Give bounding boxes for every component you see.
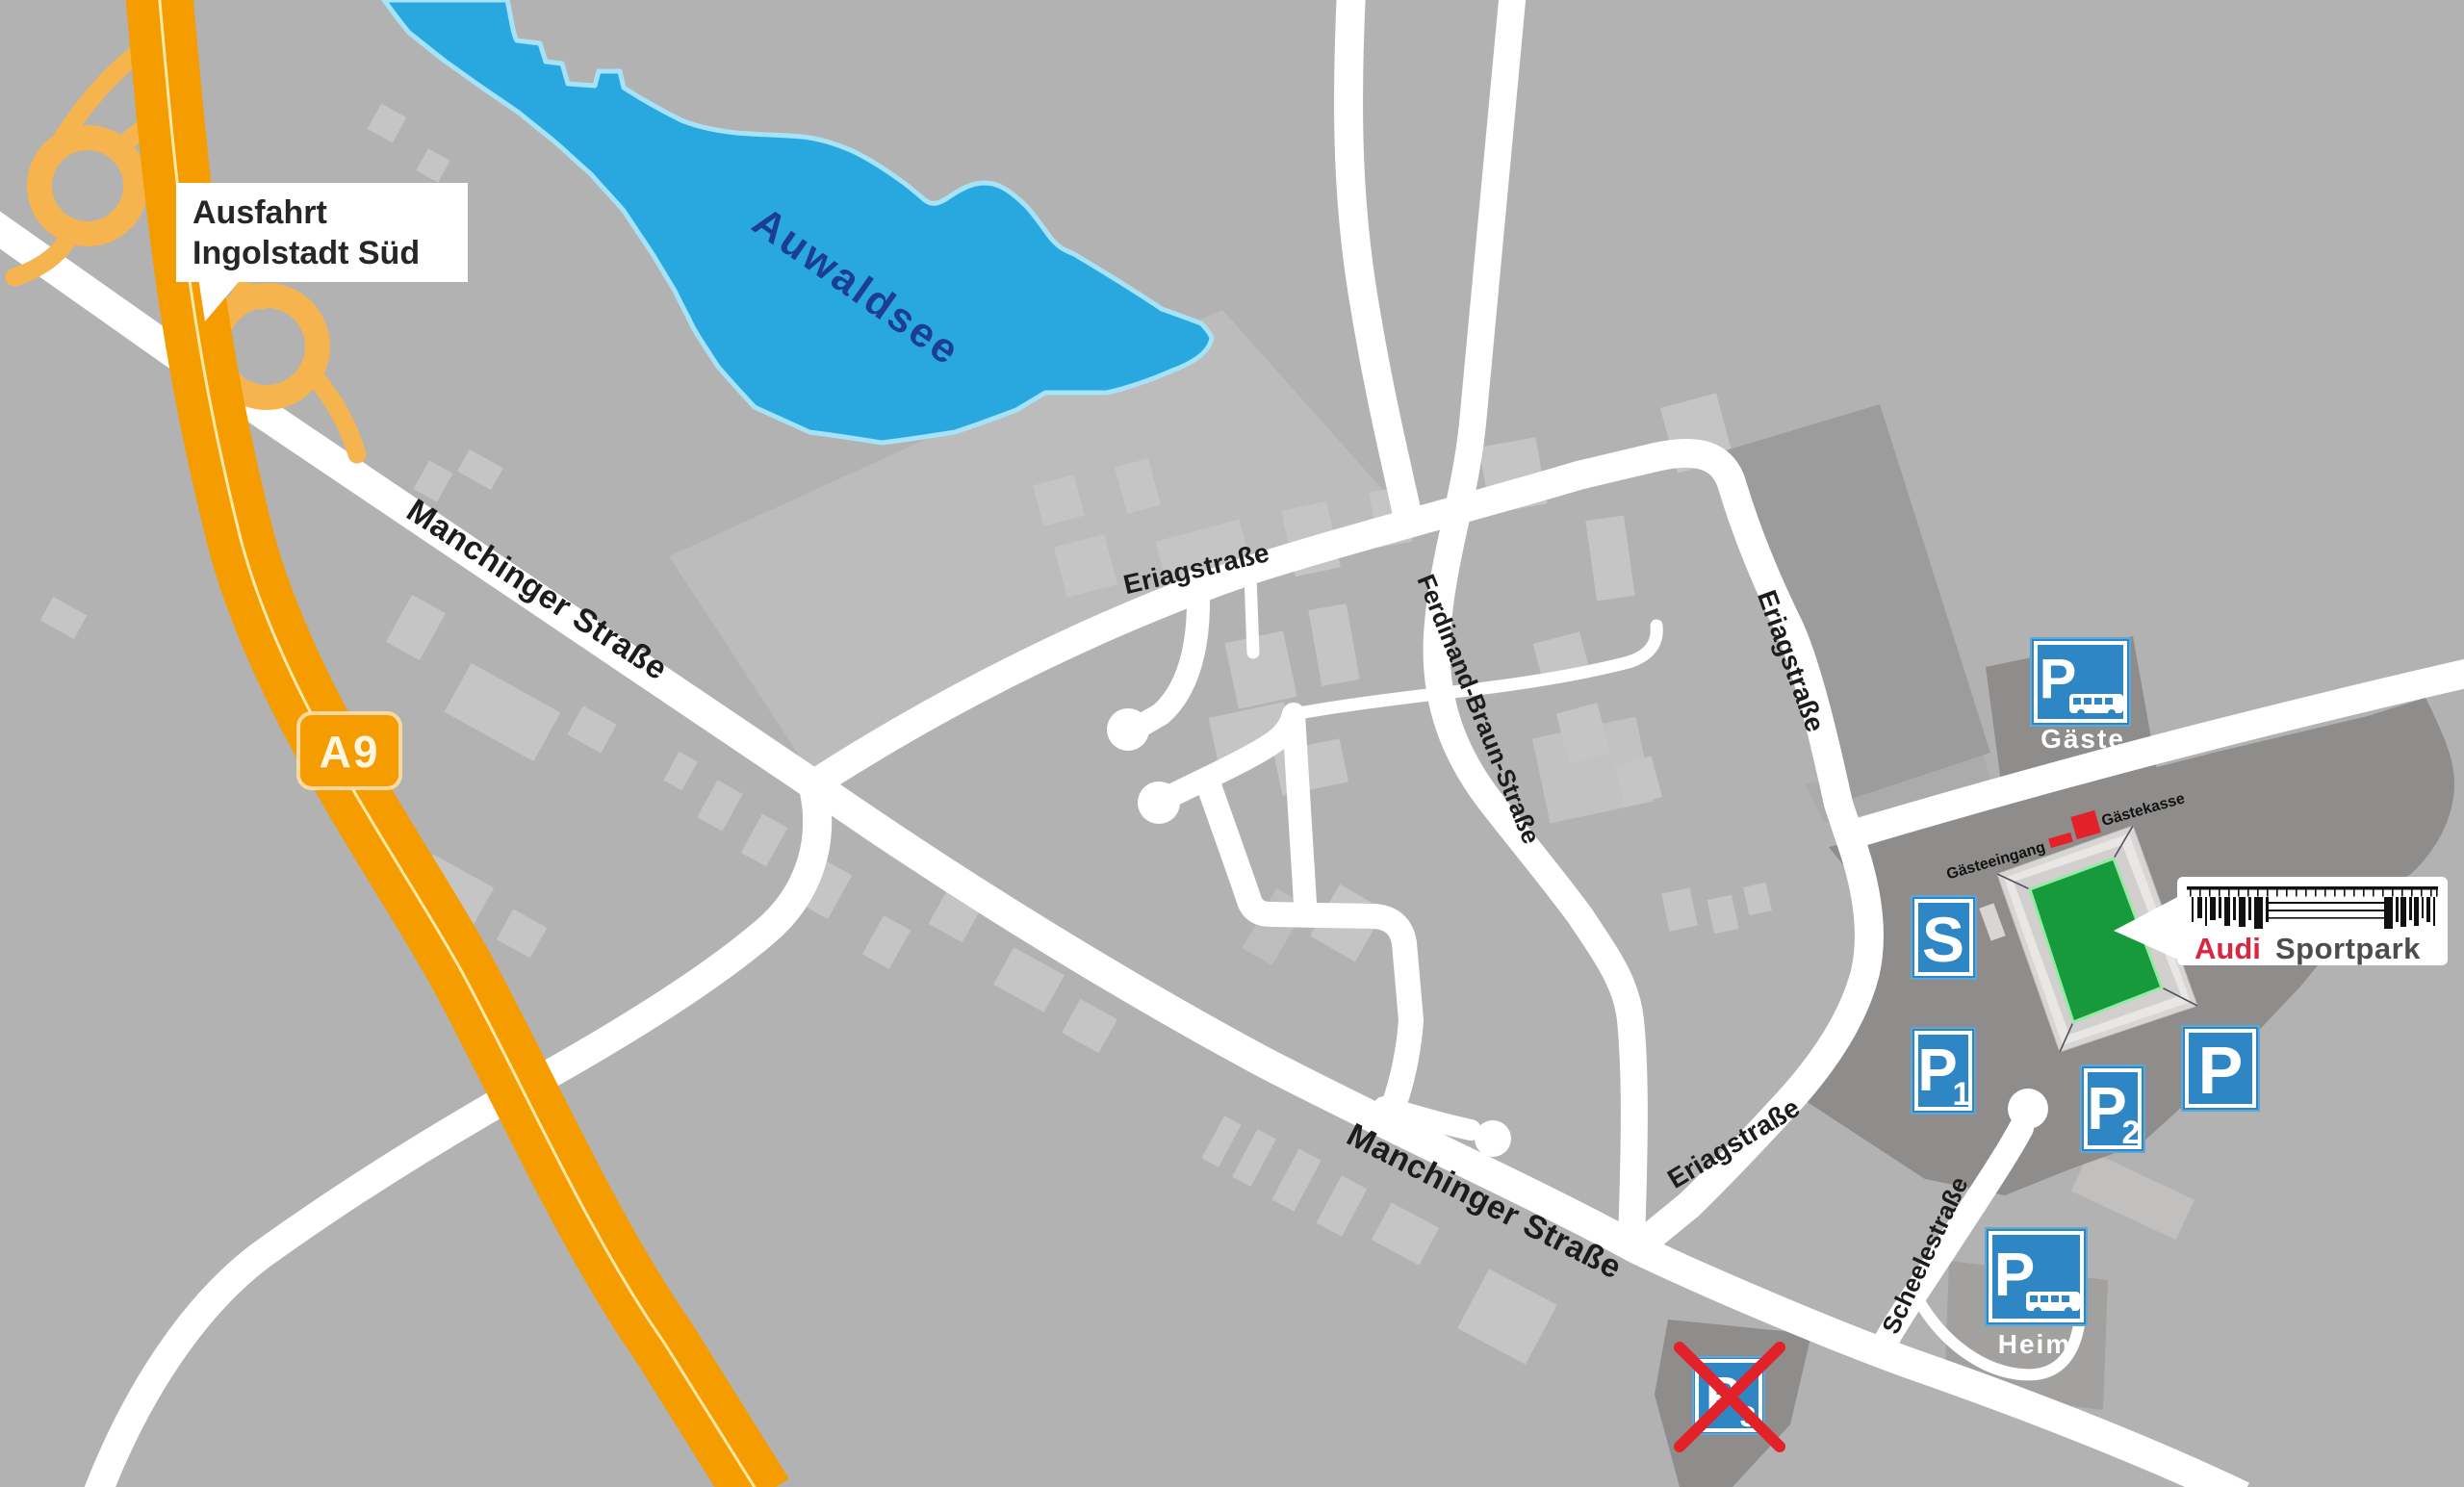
- svg-text:S: S: [1922, 904, 1964, 975]
- svg-text:P: P: [2087, 1076, 2126, 1142]
- svg-text:Ausfahrt: Ausfahrt: [192, 194, 327, 231]
- svg-text:Gäste: Gäste: [2040, 724, 2125, 754]
- svg-text:1: 1: [1953, 1076, 1971, 1113]
- svg-text:Audi: Audi: [2194, 932, 2261, 965]
- svg-text:Sportpark: Sportpark: [2275, 932, 2421, 965]
- svg-text:Heim: Heim: [1998, 1329, 2071, 1359]
- svg-text:A9: A9: [320, 727, 380, 777]
- svg-text:Ingolstadt Süd: Ingolstadt Süd: [192, 235, 420, 271]
- svg-text:P: P: [1917, 1038, 1957, 1104]
- svg-text:P: P: [2198, 1033, 2244, 1108]
- svg-text:2: 2: [2122, 1115, 2141, 1151]
